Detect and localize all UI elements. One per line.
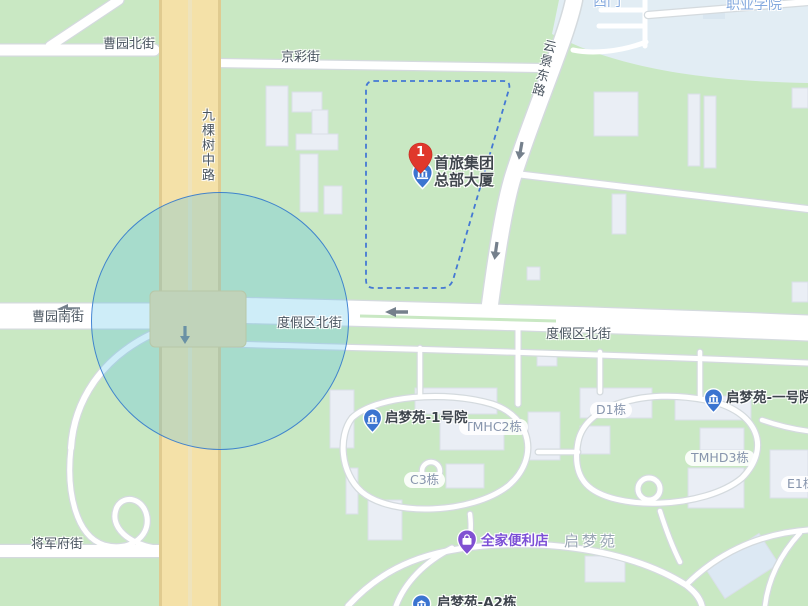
poi-label-qimengyuan-yihao[interactable]: 启梦苑-一号院 [726, 391, 808, 407]
poi-pin-familymart[interactable] [456, 529, 478, 560]
poi-label-qimengyuan-court1[interactable]: 启梦苑-1号院 [385, 411, 468, 427]
poi-title-line1: 首旅集团 [434, 155, 494, 172]
building-label-c3: C3栋 [404, 472, 445, 488]
building-icon [411, 594, 432, 606]
street-label-caoyuan-north: 曹园北街 [103, 38, 155, 53]
poi-label-familymart[interactable]: 全家便利店 [481, 534, 549, 550]
place-label-west-gate: 西门 [593, 0, 621, 10]
poi-label-qimengyuan-a2[interactable]: 启梦苑-A2栋 [437, 596, 516, 606]
street-label-jingcai: 京彩街 [281, 51, 320, 66]
building-icon [703, 388, 724, 414]
place-label-qimengyuan: 启梦苑 [564, 533, 618, 550]
street-label-caoyuan-south: 曹园南街 [32, 311, 84, 326]
poi-pin-qimengyuan-a2[interactable] [411, 594, 432, 606]
place-label-vocational-college: 职业学院 [726, 0, 782, 13]
shopping-bag-icon [456, 529, 478, 556]
map-base-layer [0, 0, 808, 606]
building-label-e1: E1栋 [781, 476, 808, 492]
map-canvas[interactable]: 曹园北街 京彩街 九棵树中路 云景东路 曹园南街 度假区北街 度假区北街 将军府… [0, 0, 808, 606]
street-label-dujiaqu-east: 度假区北街 [546, 328, 611, 343]
poi-pin-qimengyuan-yihao[interactable] [703, 388, 724, 418]
building-label-d1: D1栋 [590, 402, 632, 418]
poi-pin-qimengyuan-court1[interactable] [362, 408, 383, 438]
building-icon [362, 408, 383, 434]
marker-number: 1 [407, 145, 434, 160]
building-label-tmhd3: TMHD3栋 [685, 450, 755, 466]
search-result-marker-1[interactable]: 1 [407, 142, 434, 179]
building-label-tmhc2: TMHC2栋 [459, 419, 528, 435]
poi-title-line2: 总部大厦 [434, 172, 494, 189]
street-label-jiangjunfu: 将军府街 [31, 538, 83, 553]
street-label-jiukeshu: 九棵树中路 [198, 108, 213, 183]
street-label-dujiaqu-west: 度假区北街 [277, 317, 342, 332]
poi-title-shoulv[interactable]: 首旅集团 总部大厦 [434, 155, 494, 189]
